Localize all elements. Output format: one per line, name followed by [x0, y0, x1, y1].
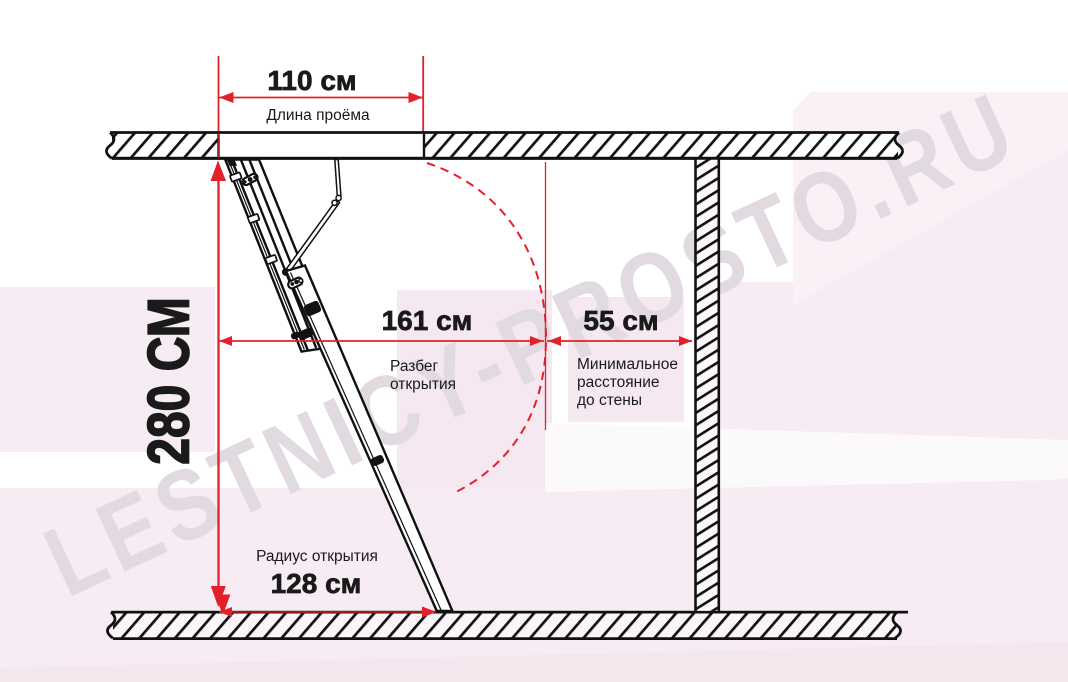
- svg-text:Разбег: Разбег: [390, 358, 439, 375]
- svg-text:открытия: открытия: [390, 376, 456, 393]
- svg-text:161 см: 161 см: [382, 305, 473, 336]
- svg-text:128 см: 128 см: [271, 568, 362, 599]
- svg-text:Радиус открытия: Радиус открытия: [256, 548, 378, 565]
- svg-text:до стены: до стены: [577, 392, 642, 409]
- svg-text:Минимальное: Минимальное: [577, 356, 678, 373]
- svg-text:280 СМ: 280 СМ: [137, 297, 202, 464]
- svg-text:110 см: 110 см: [267, 65, 356, 96]
- svg-text:Длина проёма: Длина проёма: [266, 107, 370, 124]
- svg-text:расстояние: расстояние: [577, 374, 660, 391]
- svg-text:55 см: 55 см: [583, 305, 658, 336]
